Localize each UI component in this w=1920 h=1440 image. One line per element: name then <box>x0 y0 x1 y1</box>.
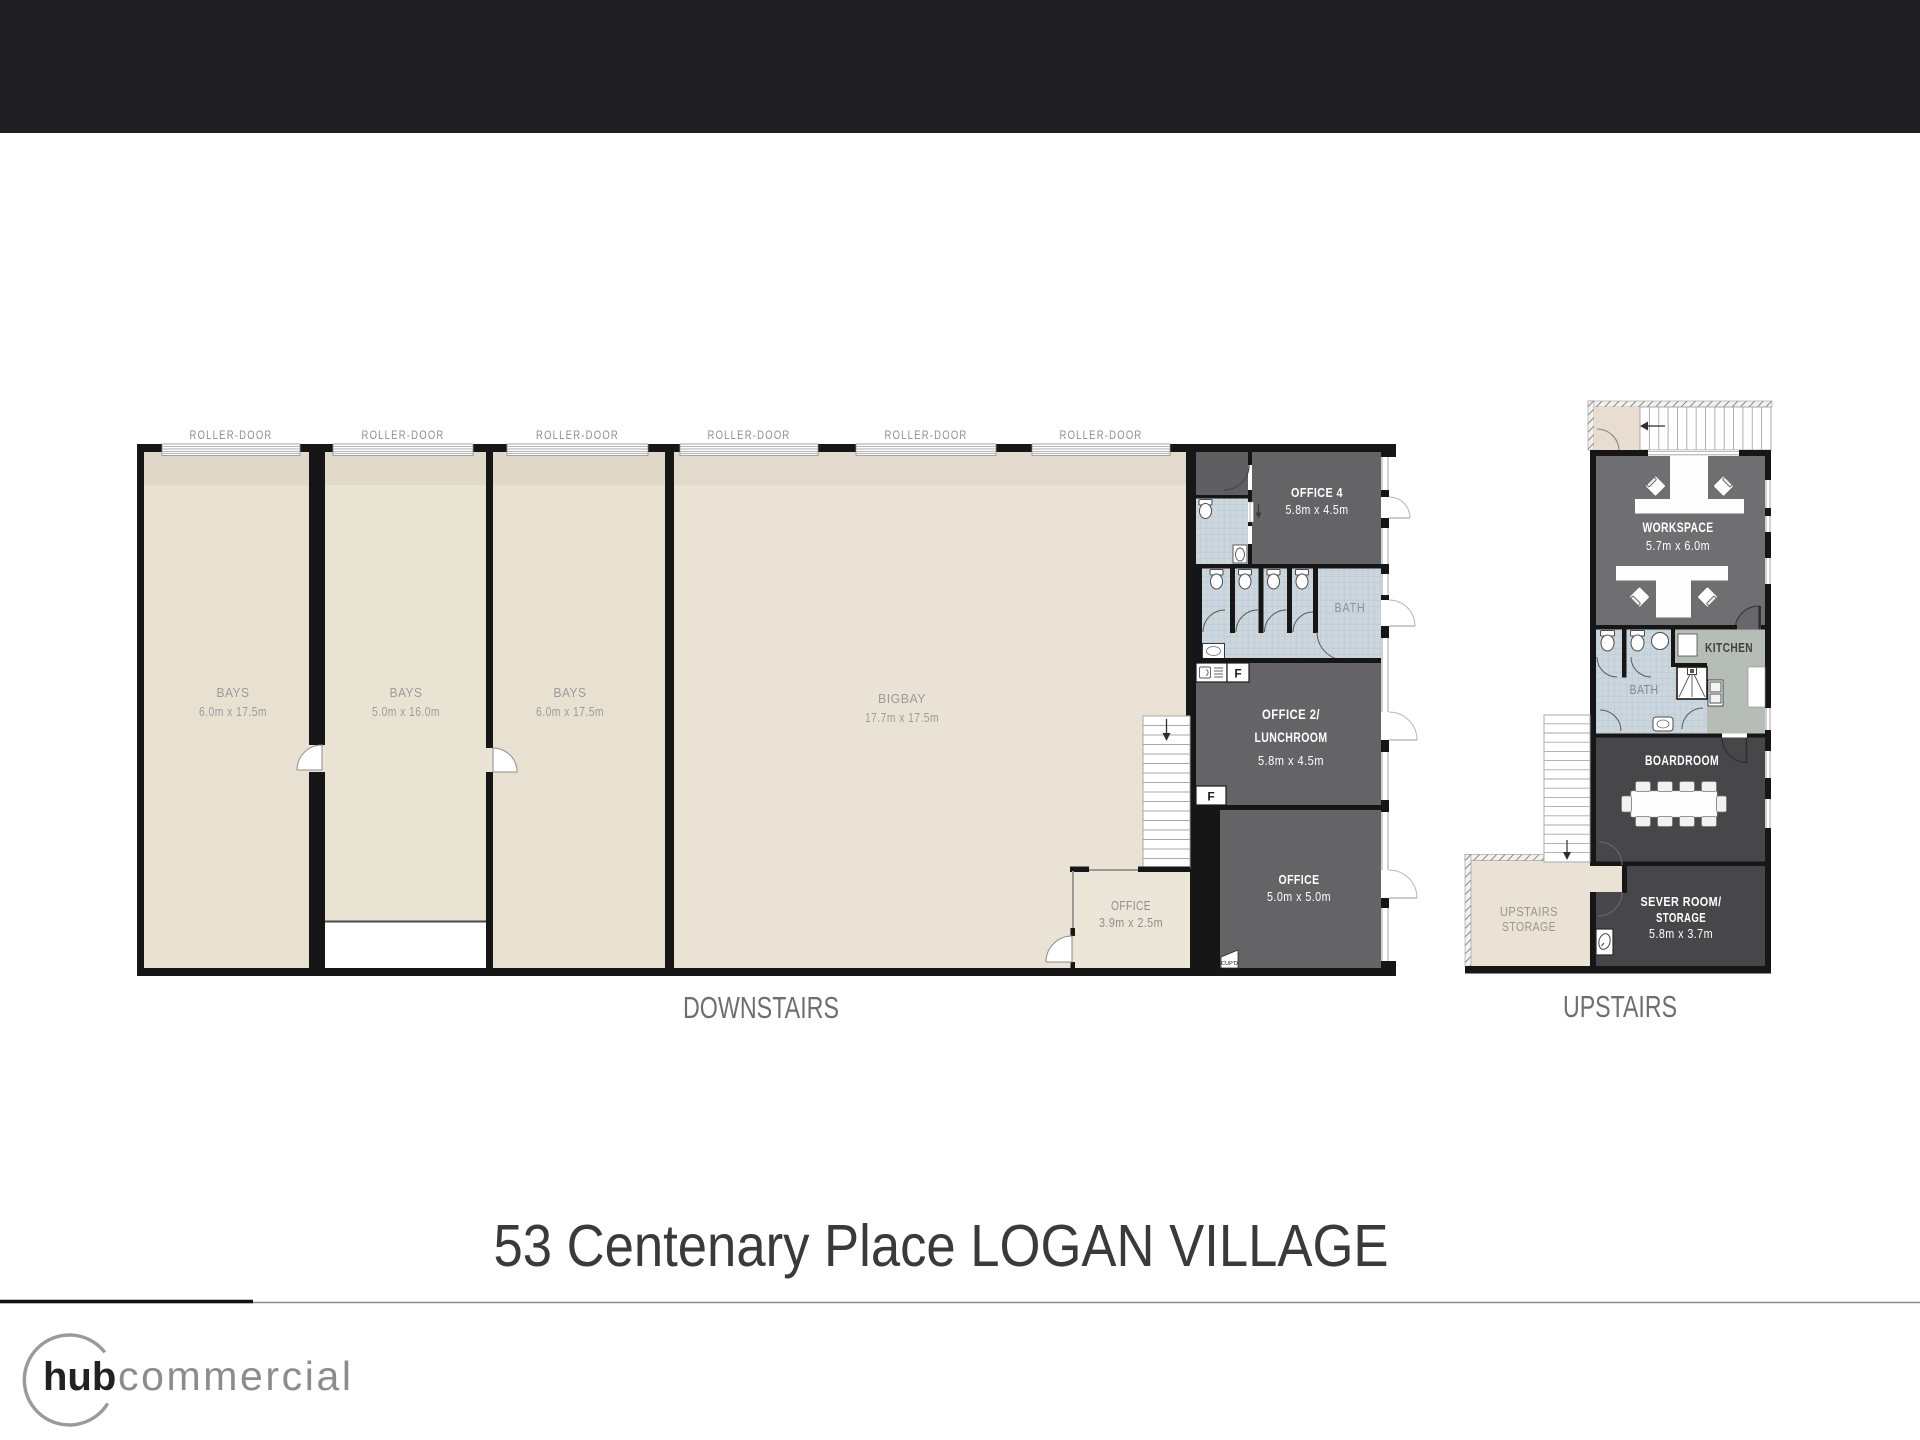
svg-text:OFFICE: OFFICE <box>1111 899 1151 913</box>
svg-text:6.0m x 17.5m: 6.0m x 17.5m <box>536 705 604 719</box>
svg-text:F: F <box>1234 667 1241 681</box>
svg-text:5.8m x 3.7m: 5.8m x 3.7m <box>1649 927 1713 941</box>
svg-text:DOWNSTAIRS: DOWNSTAIRS <box>683 990 839 1025</box>
svg-text:UPSTAIRS: UPSTAIRS <box>1563 989 1677 1024</box>
svg-text:3.9m x 2.5m: 3.9m x 2.5m <box>1099 916 1163 930</box>
svg-text:BAYS: BAYS <box>217 686 250 700</box>
svg-text:BOARDROOM: BOARDROOM <box>1645 753 1719 768</box>
svg-text:5.8m x 4.5m: 5.8m x 4.5m <box>1258 754 1324 768</box>
svg-text:LUNCHROOM: LUNCHROOM <box>1255 730 1328 745</box>
svg-text:ROLLER-DOOR: ROLLER-DOOR <box>885 430 968 442</box>
svg-text:5.0m x 16.0m: 5.0m x 16.0m <box>372 705 440 719</box>
svg-text:BATH: BATH <box>1630 683 1659 697</box>
svg-text:ROLLER-DOOR: ROLLER-DOOR <box>190 430 273 442</box>
svg-text:STORAGE: STORAGE <box>1502 919 1556 934</box>
svg-text:commercial: commercial <box>118 1353 354 1399</box>
svg-text:BAYS: BAYS <box>390 686 423 700</box>
svg-text:KITCHEN: KITCHEN <box>1705 641 1753 655</box>
svg-text:ROLLER-DOOR: ROLLER-DOOR <box>708 430 791 442</box>
svg-text:BATH: BATH <box>1335 600 1366 615</box>
svg-text:ROLLER-DOOR: ROLLER-DOOR <box>362 430 445 442</box>
svg-text:6.0m x 17.5m: 6.0m x 17.5m <box>199 705 267 719</box>
svg-text:OFFICE 4: OFFICE 4 <box>1291 486 1343 500</box>
svg-text:WORKSPACE: WORKSPACE <box>1643 519 1714 535</box>
svg-text:OFFICE 2/: OFFICE 2/ <box>1262 707 1320 722</box>
svg-text:SEVER ROOM/: SEVER ROOM/ <box>1641 894 1722 909</box>
svg-text:STORAGE: STORAGE <box>1656 910 1706 925</box>
svg-text:5.7m x 6.0m: 5.7m x 6.0m <box>1646 539 1710 553</box>
svg-text:53 Centenary Place LOGAN VILLA: 53 Centenary Place LOGAN VILLAGE <box>494 1213 1389 1279</box>
svg-text:ROLLER-DOOR: ROLLER-DOOR <box>1060 430 1143 442</box>
svg-text:hub: hub <box>43 1355 116 1399</box>
svg-text:CUP'D: CUP'D <box>1221 961 1238 967</box>
svg-text:ROLLER-DOOR: ROLLER-DOOR <box>536 430 619 442</box>
svg-text:UPSTAIRS: UPSTAIRS <box>1500 904 1558 919</box>
svg-text:5.0m x 5.0m: 5.0m x 5.0m <box>1267 890 1331 904</box>
svg-text:17.7m x 17.5m: 17.7m x 17.5m <box>865 711 939 725</box>
svg-text:5.8m x 4.5m: 5.8m x 4.5m <box>1286 503 1349 517</box>
svg-text:F: F <box>1207 790 1214 804</box>
svg-text:OFFICE: OFFICE <box>1279 872 1320 887</box>
svg-text:BIGBAY: BIGBAY <box>878 691 926 706</box>
svg-text:BAYS: BAYS <box>554 686 587 700</box>
